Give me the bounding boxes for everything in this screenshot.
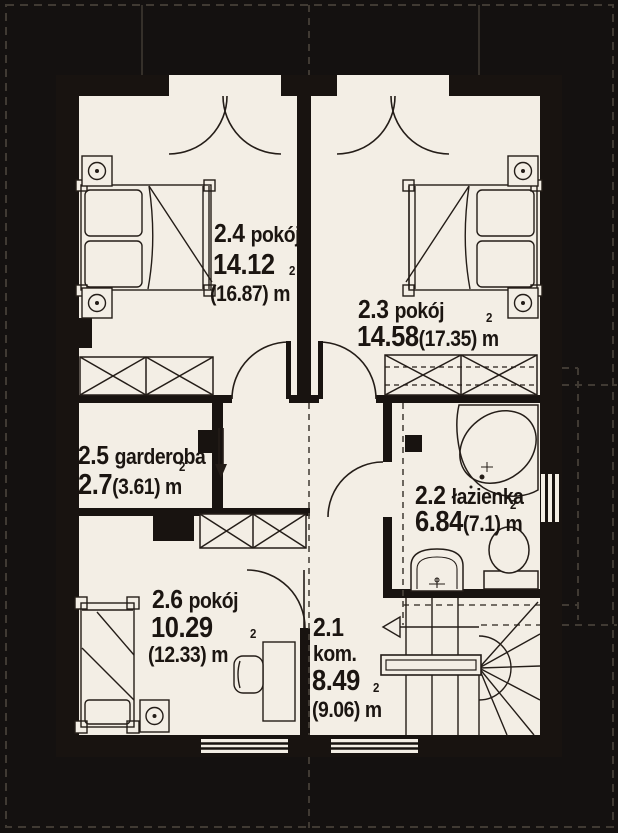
desk-top — [263, 642, 295, 721]
vent-stack-hatching — [541, 474, 559, 522]
door-leaf-room23 — [318, 341, 323, 399]
window-alcove-left — [169, 75, 281, 97]
floor-plan-canvas: 2.4pokój 14.12 2 (16.87) m 2.3pokój 2 14… — [0, 0, 618, 833]
flue-block — [153, 516, 194, 541]
wall-bath-left-upper — [383, 403, 392, 462]
tub-tap — [470, 486, 473, 489]
nightstand — [82, 156, 112, 186]
wall-hall-top-right — [376, 395, 540, 403]
nightstand — [508, 288, 538, 318]
nightstand — [508, 156, 538, 186]
nightstand — [82, 288, 112, 318]
toilet-tank — [484, 571, 538, 589]
lamp-dot — [521, 169, 525, 173]
wall-hall-top-center — [289, 395, 319, 403]
flue-block — [405, 435, 422, 452]
lamp-dot — [521, 301, 525, 305]
desk — [263, 642, 295, 721]
wall-wardrobe-right — [212, 403, 223, 512]
wall-pier-left — [56, 318, 92, 348]
wardrobe-room26 — [200, 514, 306, 548]
flue-block — [198, 430, 218, 453]
wall-center — [297, 96, 311, 403]
vent-stripe — [555, 474, 559, 522]
wall-hall-top-left — [79, 395, 232, 403]
lamp-dot — [95, 169, 99, 173]
wardrobe-room23 — [385, 355, 537, 395]
lamp-dot — [95, 301, 99, 305]
washbasin — [411, 549, 463, 591]
vent-stripe — [548, 474, 552, 522]
vent-stripe — [541, 474, 545, 522]
door-leaf-room24 — [286, 341, 291, 399]
window-symbol — [331, 739, 418, 753]
window-symbol — [201, 739, 288, 753]
chair — [234, 656, 263, 693]
handrail-outer — [381, 655, 481, 675]
lamp-dot — [153, 714, 157, 718]
toilet-bowl — [489, 527, 529, 573]
window-alcove-right — [337, 75, 449, 97]
stair-handrail — [381, 655, 481, 675]
tub-drain — [480, 475, 485, 480]
wall-bath-left-lower — [383, 517, 392, 598]
floor-plan-svg — [0, 0, 618, 833]
nightstand — [140, 700, 169, 732]
wardrobe-room24 — [80, 357, 213, 395]
